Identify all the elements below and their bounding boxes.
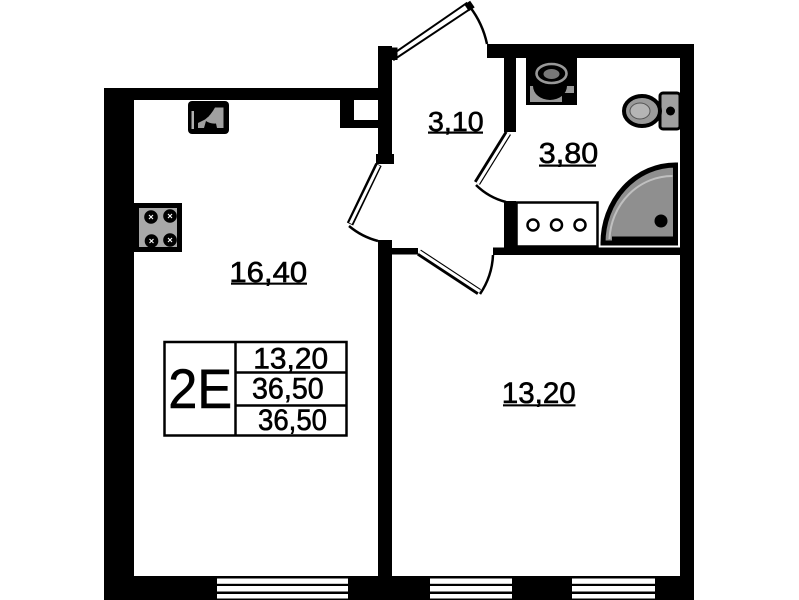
svg-text:36,50: 36,50 [258, 404, 327, 437]
svg-text:13,20: 13,20 [253, 343, 328, 376]
svg-text:36,50: 36,50 [252, 373, 324, 406]
svg-text:2E: 2E [168, 357, 232, 420]
